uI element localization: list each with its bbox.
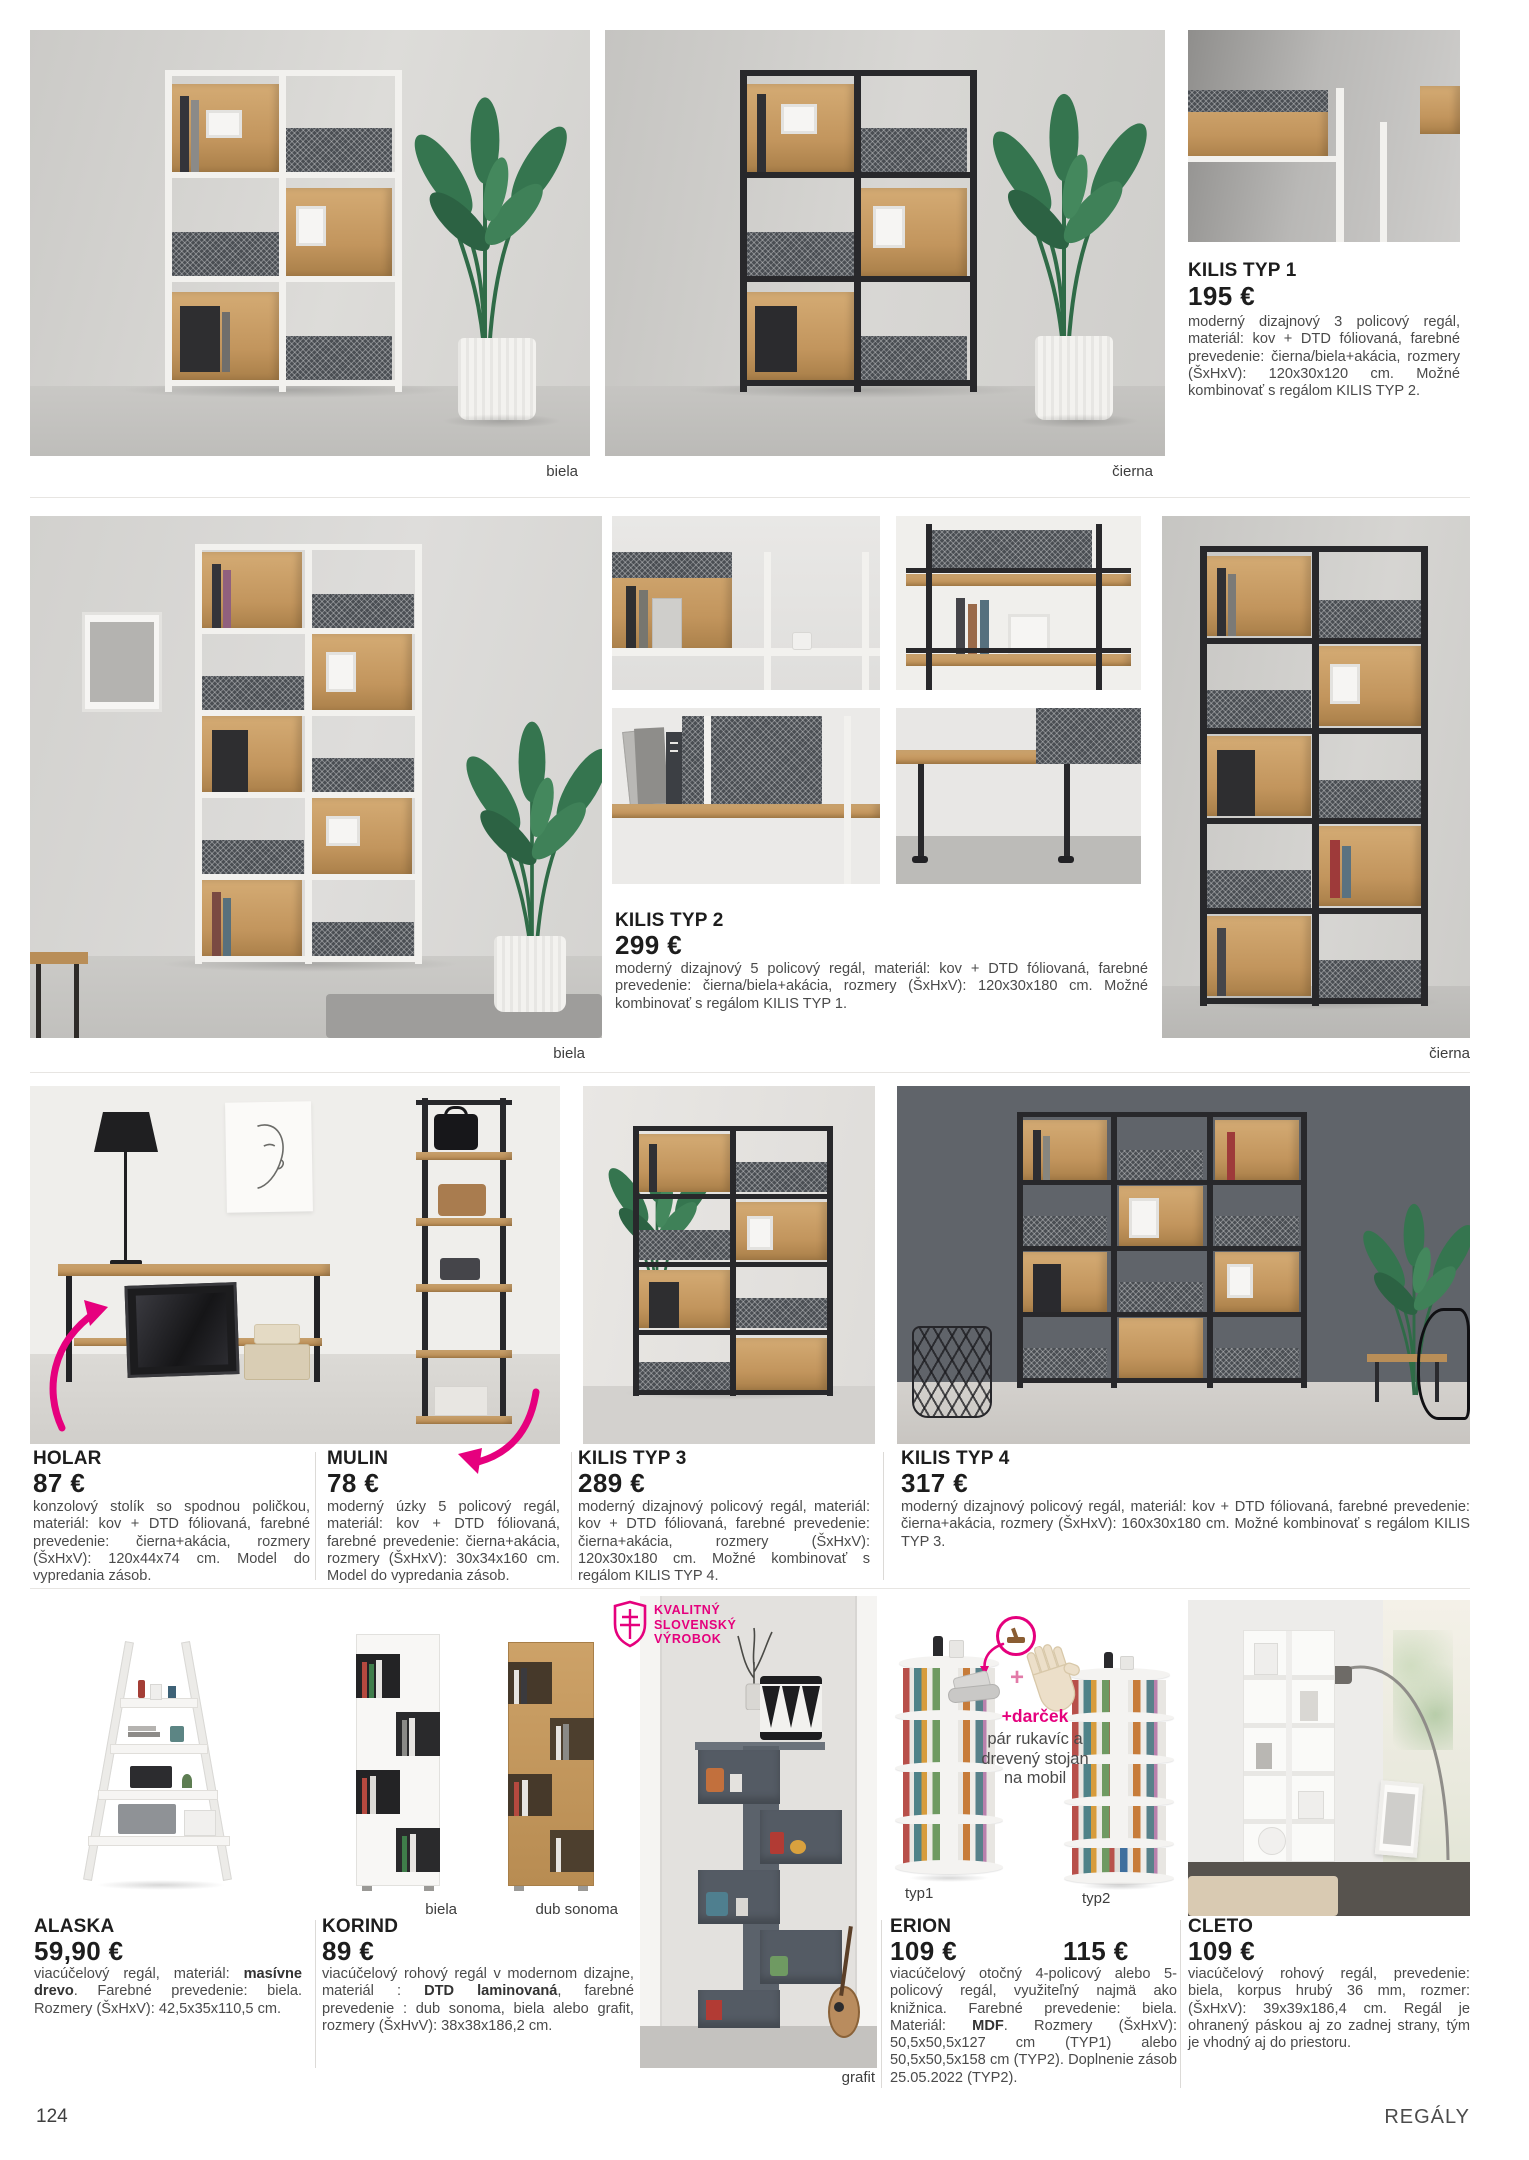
product-title-alaska: ALASKA [34, 1917, 294, 1938]
product-title-cleto: CLETO [1188, 1917, 1468, 1938]
column-divider [881, 1920, 882, 2088]
product-price-cleto: 109 € [1188, 1938, 1468, 1965]
product-desc-korind: viacúčelový rohový regál v modernom diza… [322, 1966, 634, 2035]
photo-kilis-typ2-white-room [30, 516, 602, 1038]
badge-line: SLOVENSKÝ [654, 1618, 774, 1633]
handbag-tan [438, 1184, 486, 1216]
fabric-box [118, 1804, 176, 1834]
chair-silhouette [1417, 1308, 1470, 1420]
photo-kilis-typ2-black-full [1162, 516, 1470, 1038]
photo-alaska [34, 1628, 279, 1898]
product-price-erion-typ2: 115 € [1063, 1938, 1178, 1965]
cleto-shelf [1243, 1630, 1335, 1862]
color-label: čierna [1335, 1046, 1470, 1063]
pink-curved-arrow-icon [42, 1298, 134, 1434]
rug [1188, 1876, 1338, 1916]
plant-pot [458, 338, 536, 420]
photo-korind-biela [322, 1626, 470, 1894]
product-desc-mulin: moderný úzky 5 policový regál, materiál:… [327, 1499, 560, 1585]
color-label-grafit: grafit [770, 2070, 875, 2087]
product-price-korind: 89 € [322, 1938, 602, 1965]
photo-kilis-typ1-detail [1188, 30, 1460, 242]
plant-pot [1035, 336, 1113, 420]
product-title-kilis1: KILIS TYP 1 [1188, 261, 1488, 282]
photo-kilis-typ1-white-room [30, 30, 590, 456]
column-divider [315, 1452, 316, 1580]
wall-art-sketch [225, 1101, 313, 1212]
product-desc-kilis4: moderný dizajnový policový regál, materi… [901, 1499, 1470, 1551]
product-desc-kilis3: moderný dizajnový policový regál, materi… [578, 1499, 870, 1585]
column-divider [315, 1920, 316, 2068]
variant-label-typ1: typ1 [905, 1886, 985, 1903]
product-title-erion: ERION [890, 1917, 1170, 1938]
column-divider [571, 1452, 572, 1580]
photo-kilis-typ1-black-room [605, 30, 1165, 456]
product-desc-kilis1: moderný dizajnový 3 policový regál, mate… [1188, 314, 1460, 400]
column-divider [883, 1452, 884, 1580]
badge-line: VÝROBOK [654, 1632, 774, 1647]
photo-cleto-room [1188, 1600, 1470, 1916]
product-price-kilis4: 317 € [901, 1470, 1461, 1497]
color-label: čierna [1023, 464, 1153, 481]
slovak-double-cross-shield-icon [612, 1600, 648, 1648]
product-price-kilis3: 289 € [578, 1470, 868, 1497]
plant-pot [494, 936, 566, 1012]
leaning-tv-frame [124, 1282, 239, 1378]
gift-title: +darček [950, 1706, 1120, 1727]
product-price-mulin: 78 € [327, 1470, 557, 1497]
column-divider [1180, 1920, 1181, 2088]
row-divider [30, 1072, 1470, 1073]
photo-kilis2-detail-top-left [612, 516, 880, 690]
row-divider [30, 1588, 1470, 1589]
basket [244, 1344, 310, 1380]
product-title-korind: KORIND [322, 1917, 602, 1938]
photo-korind-dub-sonoma [486, 1636, 618, 1894]
lamp-shade [94, 1112, 158, 1152]
product-title-kilis2: KILIS TYP 2 [615, 911, 915, 932]
gift-text: pár rukavíc a drevený stojan na mobil [935, 1730, 1135, 1789]
product-desc-erion: viacúčelový otočný 4-policový alebo 5-po… [890, 1966, 1177, 2087]
product-desc-alaska: viacúčelový regál, materiál: masívne dre… [34, 1966, 302, 2018]
gift-text-line: drevený stojan [935, 1750, 1135, 1770]
product-price-kilis1: 195 € [1188, 283, 1488, 310]
gift-text-line: pár rukavíc a [935, 1730, 1135, 1750]
color-label: biela [450, 1046, 585, 1063]
variant-label-typ2: typ2 [1082, 1891, 1162, 1908]
photo-korind-grafit-room [640, 1596, 877, 2068]
product-title-kilis4: KILIS TYP 4 [901, 1449, 1461, 1470]
gift-text-line: na mobil [935, 1769, 1135, 1789]
photo-kilis-typ3 [583, 1086, 875, 1444]
leaning-frame [1375, 1780, 1423, 1857]
photo-kilis2-detail-top-right [896, 516, 1141, 690]
photo-kilis2-detail-bottom-left [612, 708, 880, 884]
photo-kilis2-detail-bottom-right [896, 708, 1141, 884]
product-price-holar: 87 € [33, 1470, 303, 1497]
product-desc-holar: konzolový stolík so spodnou poličkou, ma… [33, 1499, 310, 1585]
product-price-kilis2: 299 € [615, 932, 915, 959]
stool [30, 952, 88, 964]
page-number: 124 [36, 2106, 68, 2128]
row-divider [30, 497, 1470, 498]
guitar [820, 1926, 860, 2056]
console-table-top [58, 1264, 330, 1276]
badge-line: KVALITNÝ [654, 1603, 774, 1618]
catalog-page: biela čierna KILIS TYP 1 195 € moderný d… [0, 0, 1529, 2160]
product-price-erion-typ1: 109 € [890, 1938, 1040, 1965]
section-title: REGÁLY [1270, 2106, 1470, 2129]
phone-stand-product [946, 1658, 1004, 1704]
product-desc-kilis2: moderný dizajnový 5 policový regál, mate… [615, 961, 1148, 1013]
product-title-kilis3: KILIS TYP 3 [578, 1449, 868, 1470]
product-title-mulin: MULIN [327, 1449, 557, 1470]
product-price-alaska: 59,90 € [34, 1938, 294, 1965]
wire-basket [912, 1326, 992, 1418]
product-title-holar: HOLAR [33, 1449, 303, 1470]
color-label: biela [448, 464, 578, 481]
quality-badge: KVALITNÝ SLOVENSKÝ VÝROBOK [654, 1603, 774, 1647]
product-desc-cleto: viacúčelový rohový regál, prevedenie: bi… [1188, 1966, 1470, 2052]
photo-kilis-typ4-room [897, 1086, 1470, 1444]
drum-decor [760, 1676, 822, 1740]
